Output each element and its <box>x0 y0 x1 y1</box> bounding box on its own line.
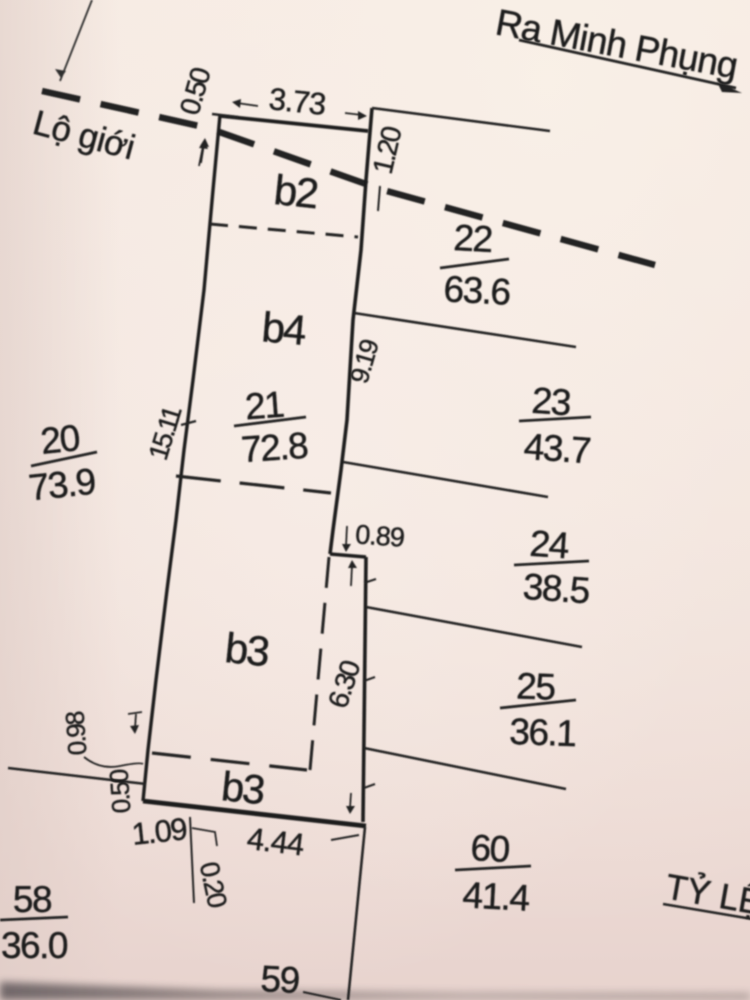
svg-text:24: 24 <box>528 523 570 567</box>
svg-text:b3: b3 <box>219 763 265 813</box>
svg-text:58: 58 <box>13 879 51 920</box>
svg-text:1.09: 1.09 <box>130 811 188 852</box>
svg-text:25: 25 <box>516 665 556 707</box>
svg-text:b2: b2 <box>272 166 320 217</box>
svg-text:41.4: 41.4 <box>462 874 531 918</box>
svg-text:b4: b4 <box>260 303 308 354</box>
svg-text:b3: b3 <box>223 624 271 675</box>
svg-text:38.5: 38.5 <box>522 566 592 612</box>
svg-text:20: 20 <box>39 417 82 462</box>
svg-text:0.98: 0.98 <box>59 710 92 756</box>
svg-text:72.8: 72.8 <box>240 425 309 471</box>
svg-text:36.0: 36.0 <box>1 925 68 966</box>
svg-text:73.9: 73.9 <box>27 461 97 509</box>
svg-text:59: 59 <box>260 958 300 1000</box>
svg-text:0.50: 0.50 <box>103 768 136 814</box>
svg-text:4.44: 4.44 <box>245 821 306 863</box>
svg-text:63.6: 63.6 <box>443 268 511 312</box>
svg-text:23: 23 <box>530 380 571 424</box>
svg-text:3.73: 3.73 <box>267 81 327 122</box>
svg-text:22: 22 <box>453 217 493 260</box>
svg-text:43.7: 43.7 <box>523 426 592 472</box>
svg-text:21: 21 <box>244 384 285 428</box>
svg-text:36.1: 36.1 <box>509 711 576 754</box>
svg-text:0.89: 0.89 <box>354 519 405 552</box>
svg-text:60: 60 <box>470 827 511 870</box>
